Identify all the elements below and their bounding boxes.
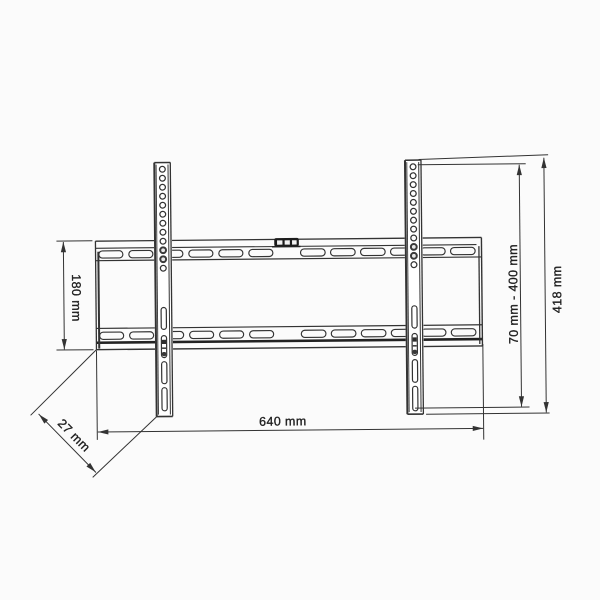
svg-text:640 mm: 640 mm xyxy=(259,414,307,428)
svg-text:418 mm: 418 mm xyxy=(550,265,564,313)
svg-text:70 mm - 400 mm: 70 mm - 400 mm xyxy=(506,244,521,344)
svg-text:27 mm: 27 mm xyxy=(55,416,93,454)
svg-text:180 mm: 180 mm xyxy=(69,274,83,322)
